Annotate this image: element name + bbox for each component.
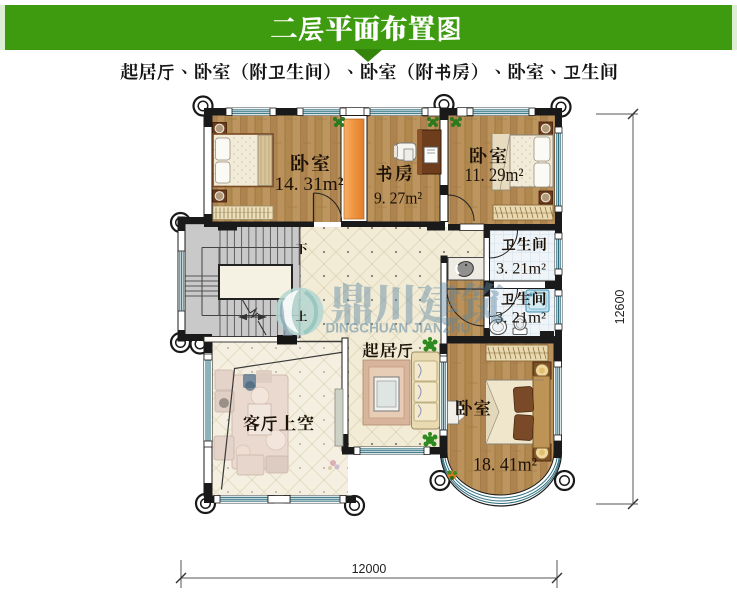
svg-text:12000: 12000 (352, 562, 387, 576)
svg-text:3. 21m²: 3. 21m² (496, 261, 546, 278)
svg-text:11. 29m²: 11. 29m² (465, 165, 524, 186)
svg-text:9. 27m²: 9. 27m² (374, 189, 422, 208)
svg-text:12600: 12600 (613, 290, 627, 325)
svg-text:18. 41m²: 18. 41m² (473, 456, 537, 476)
svg-text:14. 31m²: 14. 31m² (275, 174, 344, 195)
svg-text:DINGCHUAN JIANZHU: DINGCHUAN JIANZHU (326, 321, 471, 336)
